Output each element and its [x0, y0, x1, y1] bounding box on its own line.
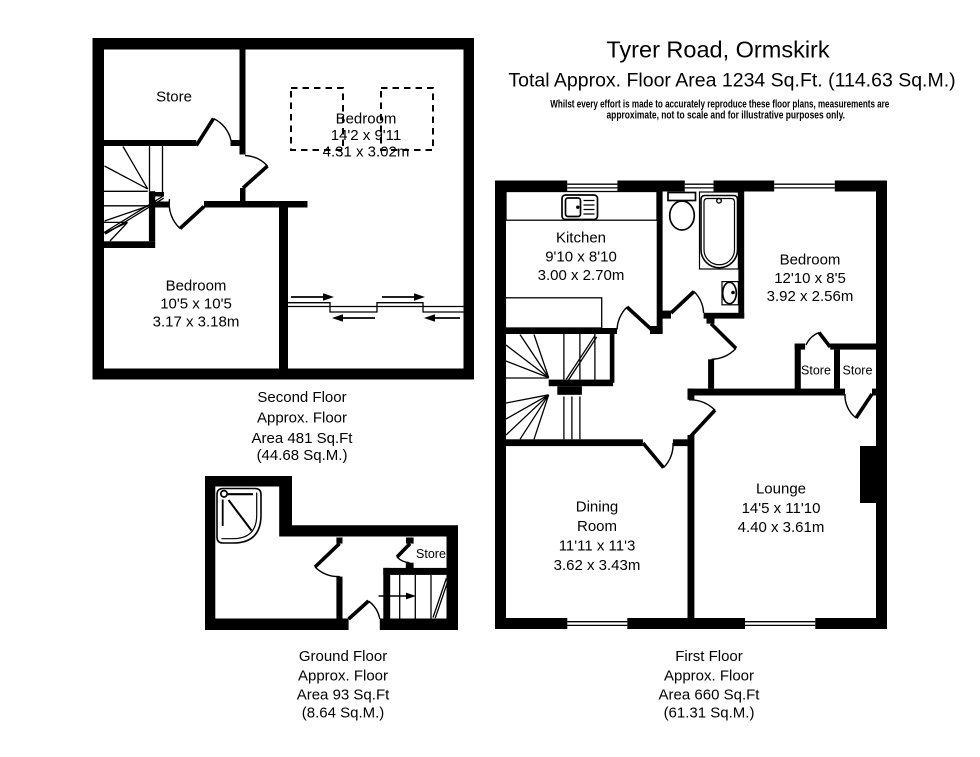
svg-text:Store: Store: [156, 88, 192, 105]
svg-text:Tyrer Road, Ormskirk: Tyrer Road, Ormskirk: [606, 37, 830, 63]
svg-text:Bedroom: Bedroom: [336, 110, 397, 127]
svg-text:Store: Store: [801, 364, 831, 378]
svg-text:(61.31 Sq.M.): (61.31 Sq.M.): [664, 705, 755, 722]
svg-text:(44.68 Sq.M.): (44.68 Sq.M.): [257, 447, 348, 464]
svg-text:10'5 x 10'5: 10'5 x 10'5: [160, 295, 232, 312]
svg-text:Area 481 Sq.Ft: Area 481 Sq.Ft: [252, 430, 354, 447]
svg-text:Second Floor: Second Floor: [257, 389, 346, 406]
svg-text:Kitchen: Kitchen: [556, 229, 606, 246]
svg-text:Total Approx. Floor Area 1234: Total Approx. Floor Area 1234 Sq.Ft. (11…: [508, 69, 955, 91]
svg-text:Bedroom: Bedroom: [166, 277, 227, 294]
svg-text:Approx. Floor: Approx. Floor: [298, 667, 388, 684]
svg-text:3.17 x 3.18m: 3.17 x 3.18m: [153, 313, 240, 330]
svg-text:3.00 x 2.70m: 3.00 x 2.70m: [538, 267, 625, 284]
svg-text:Ground Floor: Ground Floor: [299, 648, 387, 665]
svg-text:Store: Store: [416, 547, 446, 561]
svg-text:3.62 x 3.43m: 3.62 x 3.43m: [554, 557, 641, 574]
svg-text:Bedroom: Bedroom: [780, 251, 841, 268]
svg-text:9'10 x 8'10: 9'10 x 8'10: [545, 248, 617, 265]
svg-text:Dining: Dining: [576, 499, 619, 516]
svg-text:Store: Store: [843, 364, 873, 378]
svg-text:Lounge: Lounge: [756, 480, 806, 497]
svg-text:First Floor: First Floor: [675, 648, 743, 665]
svg-text:14'2 x 9'11: 14'2 x 9'11: [331, 127, 402, 144]
svg-text:12'10 x 8'5: 12'10 x 8'5: [774, 270, 846, 287]
svg-text:Area 660 Sq.Ft: Area 660 Sq.Ft: [659, 687, 761, 704]
svg-text:approximate, not to scale and: approximate, not to scale and for illust…: [607, 110, 846, 122]
svg-text:Approx. Floor: Approx. Floor: [257, 409, 347, 426]
svg-text:Approx. Floor: Approx. Floor: [664, 667, 754, 684]
svg-text:11'11 x 11'3: 11'11 x 11'3: [559, 538, 636, 555]
svg-text:4.40 x 3.61m: 4.40 x 3.61m: [738, 519, 825, 536]
svg-text:Area 93 Sq.Ft: Area 93 Sq.Ft: [297, 687, 390, 704]
svg-text:(8.64 Sq.M.): (8.64 Sq.M.): [302, 705, 385, 722]
svg-text:14'5 x 11'10: 14'5 x 11'10: [742, 500, 821, 517]
svg-text:4.31 x 3.02m: 4.31 x 3.02m: [323, 143, 410, 160]
svg-text:3.92 x 2.56m: 3.92 x 2.56m: [767, 288, 854, 305]
svg-text:Room: Room: [577, 518, 617, 535]
